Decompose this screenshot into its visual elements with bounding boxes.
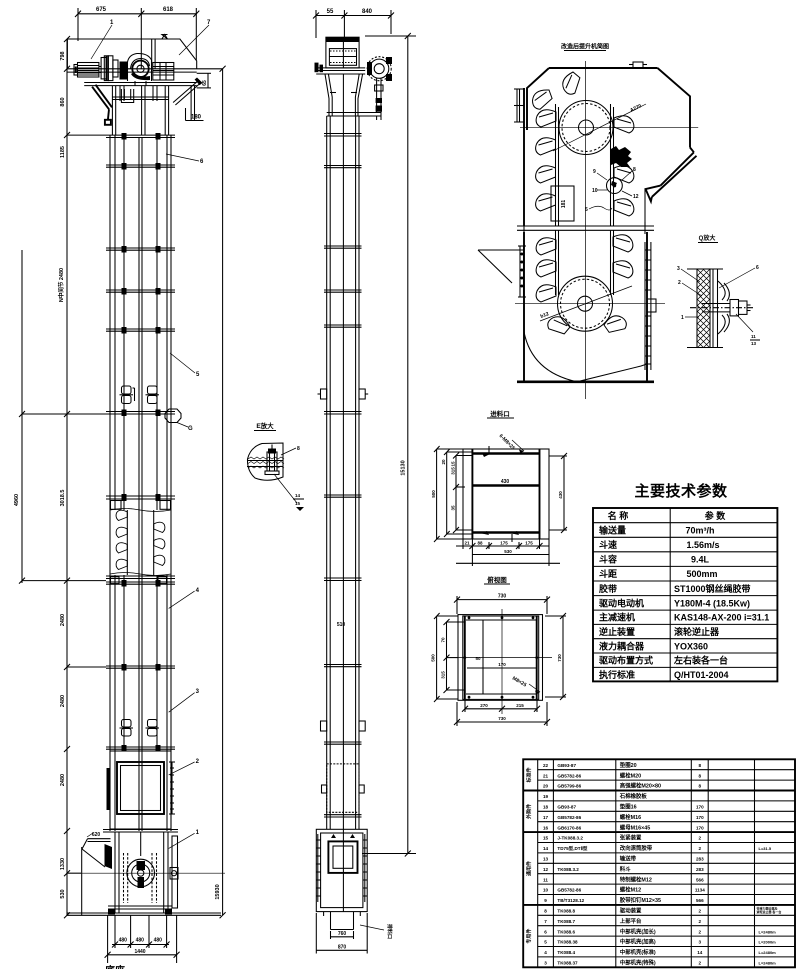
svg-text:430: 430 (501, 479, 510, 485)
svg-text:俯视图: 俯视图 (487, 575, 507, 584)
svg-text:专用件: 专用件 (526, 929, 533, 944)
svg-text:6: 6 (756, 265, 759, 271)
svg-text:1: 1 (681, 315, 684, 321)
svg-text:3018.5: 3018.5 (60, 490, 66, 507)
svg-text:4: 4 (544, 950, 547, 955)
svg-text:500: 500 (431, 490, 436, 498)
svg-text:50: 50 (475, 656, 481, 661)
svg-text:GB5782-86: GB5782-86 (557, 888, 581, 893)
svg-text:标准件: 标准件 (526, 767, 533, 783)
svg-text:2480: 2480 (60, 695, 66, 707)
svg-text:TK088.6: TK088.6 (557, 929, 575, 934)
svg-text:3: 3 (544, 961, 547, 966)
svg-text:2: 2 (699, 919, 702, 924)
svg-text:3: 3 (677, 266, 680, 272)
svg-text:9.4L: 9.4L (691, 555, 710, 565)
svg-text:GB5799-86: GB5799-86 (557, 784, 581, 789)
svg-text:5: 5 (544, 940, 547, 945)
svg-text:840: 840 (362, 9, 373, 15)
svg-text:中部机壳(加长): 中部机壳(加长) (620, 927, 656, 935)
svg-text:9: 9 (544, 898, 547, 903)
svg-text:张紧装置: 张紧装置 (620, 834, 642, 842)
svg-text:10: 10 (592, 188, 598, 194)
svg-text:19: 19 (543, 794, 549, 799)
svg-text:3: 3 (699, 940, 702, 945)
svg-text:181: 181 (561, 200, 567, 209)
svg-text:13: 13 (751, 341, 757, 346)
svg-text:170: 170 (696, 825, 704, 830)
svg-text:14: 14 (543, 846, 549, 851)
svg-text:175: 175 (525, 541, 533, 546)
svg-text:TK088.37: TK088.37 (557, 961, 578, 966)
svg-text:4960: 4960 (14, 494, 20, 506)
svg-text:2: 2 (678, 280, 681, 286)
svg-text:左右装各一台: 左右装各一台 (673, 655, 728, 666)
svg-text:1134: 1134 (695, 888, 705, 893)
svg-text:通用件: 通用件 (526, 861, 533, 876)
svg-text:排料口: 排料口 (386, 924, 393, 939)
svg-text:螺栓M12: 螺栓M12 (620, 886, 641, 894)
svg-text:TK088.8: TK088.8 (557, 909, 575, 914)
svg-text:35: 35 (451, 505, 456, 511)
svg-text:螺母M16×45: 螺母M16×45 (620, 823, 650, 831)
svg-text:798: 798 (60, 51, 66, 60)
svg-text:Y180M-4 (18.5Kw): Y180M-4 (18.5Kw) (674, 598, 750, 608)
svg-text:88: 88 (477, 541, 483, 546)
svg-text:675: 675 (96, 7, 107, 13)
svg-text:TB/T3128.12: TB/T3128.12 (557, 898, 584, 903)
svg-text:480: 480 (136, 938, 145, 944)
svg-text:566: 566 (696, 877, 704, 882)
svg-text:L=2480m: L=2480m (759, 950, 777, 955)
svg-text:驱动装置: 驱动装置 (620, 907, 642, 915)
svg-text:21: 21 (543, 773, 549, 778)
svg-text:1185: 1185 (60, 146, 66, 158)
svg-text:中部机壳(加高): 中部机壳(加高) (620, 938, 656, 946)
svg-text:8: 8 (297, 446, 300, 452)
svg-text:TD75型,DTⅡ型: TD75型,DTⅡ型 (557, 845, 587, 852)
svg-text:特制螺栓M12: 特制螺栓M12 (620, 875, 652, 883)
svg-text:760: 760 (338, 931, 347, 937)
svg-text:65: 65 (202, 80, 208, 86)
svg-text:2: 2 (699, 846, 702, 851)
svg-text:2480: 2480 (60, 614, 66, 626)
svg-text:滚轮逆止器: 滚轮逆止器 (674, 626, 720, 637)
svg-text:L=2000m: L=2000m (759, 940, 777, 945)
svg-text:8: 8 (699, 763, 702, 768)
svg-text:TK088.3.2: TK088.3.2 (557, 867, 579, 872)
svg-text:15930: 15930 (215, 884, 221, 899)
svg-text:510: 510 (337, 622, 346, 628)
svg-text:驱动布置方式: 驱动布置方式 (599, 655, 653, 666)
svg-text:进料口: 进料口 (490, 409, 510, 418)
svg-text:执行标准: 执行标准 (599, 669, 635, 680)
svg-text:170: 170 (696, 815, 704, 820)
svg-text:530: 530 (60, 889, 66, 898)
svg-text:15: 15 (451, 461, 456, 467)
svg-text:480: 480 (154, 938, 163, 944)
svg-text:上部平台: 上部平台 (620, 917, 642, 925)
svg-text:566: 566 (696, 898, 704, 903)
svg-text:驱动电动机: 驱动电动机 (599, 597, 644, 608)
svg-text:外购件: 外购件 (526, 804, 533, 819)
svg-text:20: 20 (543, 784, 549, 789)
svg-text:GB5782-86: GB5782-86 (557, 815, 581, 820)
svg-text:螺栓M20: 螺栓M20 (620, 771, 641, 779)
svg-text:斗容: 斗容 (599, 554, 617, 565)
svg-text:GB93-87: GB93-87 (557, 763, 576, 768)
svg-text:液力耦合器: 液力耦合器 (599, 640, 645, 651)
svg-text:620: 620 (92, 832, 101, 838)
svg-text:55: 55 (327, 9, 334, 15)
svg-text:GB6170-86: GB6170-86 (557, 825, 581, 830)
svg-text:14: 14 (697, 950, 703, 955)
svg-text:22: 22 (543, 763, 549, 768)
svg-text:TK088.7: TK088.7 (557, 919, 575, 924)
svg-text:8: 8 (633, 167, 636, 173)
svg-text:中部机壳(标准): 中部机壳(标准) (620, 948, 656, 956)
svg-text:垫圈16: 垫圈16 (620, 803, 637, 811)
svg-text:500: 500 (431, 654, 436, 662)
svg-text:中部机壳(特殊): 中部机壳(特殊) (620, 959, 656, 967)
svg-text:7: 7 (544, 919, 547, 924)
svg-text:2: 2 (699, 836, 702, 841)
svg-text:5: 5 (585, 207, 588, 213)
svg-text:10: 10 (543, 888, 549, 893)
svg-text:8: 8 (699, 784, 702, 789)
svg-text:1.56m/s: 1.56m/s (686, 540, 719, 550)
svg-text:8: 8 (699, 773, 702, 778)
svg-text:12: 12 (633, 194, 639, 200)
svg-text:1330: 1330 (60, 858, 66, 870)
svg-text:283: 283 (696, 857, 704, 862)
svg-text:名 称: 名 称 (608, 510, 629, 521)
svg-text:螺栓M16: 螺栓M16 (620, 813, 641, 821)
svg-text:11: 11 (543, 877, 548, 882)
svg-text:改造后提升机简图: 改造后提升机简图 (561, 43, 609, 51)
svg-text:参 数: 参 数 (705, 510, 727, 521)
svg-text:18: 18 (543, 805, 549, 810)
svg-text:730: 730 (498, 594, 507, 600)
svg-text:胶带扣钉M12×35: 胶带扣钉M12×35 (620, 896, 661, 904)
svg-text:15: 15 (295, 501, 301, 506)
svg-text:2: 2 (699, 929, 702, 934)
svg-text:N中间节 2480: N中间节 2480 (57, 268, 65, 302)
svg-text:11: 11 (751, 334, 756, 339)
svg-text:618: 618 (163, 7, 174, 13)
svg-text:15: 15 (543, 836, 549, 841)
svg-text:730: 730 (498, 716, 506, 721)
svg-text:输送量: 输送量 (599, 525, 626, 536)
svg-text:480: 480 (119, 938, 128, 944)
svg-text:14: 14 (295, 493, 301, 498)
svg-text:15130: 15130 (401, 460, 407, 475)
svg-text:L=2480m: L=2480m (759, 961, 777, 966)
svg-text:主要技术参数: 主要技术参数 (634, 482, 728, 500)
svg-text:TK088.38: TK088.38 (557, 940, 578, 945)
svg-text:12: 12 (543, 867, 549, 872)
svg-text:料斗: 料斗 (620, 865, 631, 873)
svg-text:8: 8 (544, 909, 547, 914)
svg-text:1440: 1440 (134, 949, 145, 955)
svg-text:530: 530 (504, 549, 512, 554)
svg-text:315: 315 (441, 671, 446, 679)
svg-text:L=2480m: L=2480m (759, 929, 777, 934)
svg-text:730: 730 (557, 654, 562, 662)
svg-text:215: 215 (516, 703, 524, 708)
svg-text:315: 315 (451, 467, 456, 475)
svg-text:860: 860 (60, 97, 66, 106)
svg-text:L=31.5: L=31.5 (759, 846, 772, 851)
svg-text:Q/HT01-2004: Q/HT01-2004 (674, 670, 729, 680)
svg-text:改向滚筒胶带: 改向滚筒胶带 (620, 844, 653, 852)
svg-text:主减速机: 主减速机 (599, 612, 635, 623)
svg-text:ST1000钢丝绳胶带: ST1000钢丝绳胶带 (674, 583, 751, 594)
svg-text:斗速: 斗速 (599, 539, 617, 550)
svg-text:13: 13 (543, 857, 549, 862)
svg-text:283: 283 (696, 867, 704, 872)
svg-text:2: 2 (699, 961, 702, 966)
svg-text:17: 17 (543, 815, 549, 820)
svg-text:16: 16 (543, 825, 549, 830)
svg-text:输送带: 输送带 (620, 855, 637, 863)
svg-text:20: 20 (441, 459, 446, 465)
svg-text:胶带: 胶带 (599, 583, 617, 594)
svg-text:180: 180 (191, 114, 202, 120)
svg-text:GB93-87: GB93-87 (557, 805, 576, 810)
svg-text:500mm: 500mm (686, 569, 717, 579)
svg-text:430: 430 (558, 491, 563, 499)
svg-text:Q放大: Q放大 (699, 234, 716, 242)
svg-text:170: 170 (696, 805, 704, 810)
svg-text:滚轮逆止器 各一台: 滚轮逆止器 各一台 (757, 909, 782, 914)
svg-text:YOX360: YOX360 (674, 641, 708, 651)
svg-text:6: 6 (544, 929, 547, 934)
svg-text:TK088.4: TK088.4 (557, 950, 575, 955)
svg-text:G: G (188, 426, 193, 432)
svg-text:70: 70 (441, 637, 446, 643)
svg-text:270: 270 (480, 703, 488, 708)
svg-text:175: 175 (500, 541, 508, 546)
svg-text:70m³/h: 70m³/h (685, 526, 714, 536)
svg-text:高强螺栓M20×80: 高强螺栓M20×80 (620, 782, 661, 790)
svg-text:石棉橡胶板: 石棉橡胶板 (619, 792, 648, 800)
svg-text:GB5782-86: GB5782-86 (557, 773, 581, 778)
svg-text:E放大: E放大 (256, 421, 274, 430)
svg-text:斗距: 斗距 (599, 569, 617, 579)
svg-text:垫圈20: 垫圈20 (620, 761, 637, 769)
svg-text:2: 2 (699, 909, 702, 914)
svg-text:9: 9 (593, 169, 596, 175)
svg-text:870: 870 (338, 945, 347, 951)
svg-text:KAS148-AX-200 i=31.1: KAS148-AX-200 i=31.1 (674, 613, 769, 623)
svg-text:21: 21 (464, 541, 470, 546)
svg-text:J-TK088.3.2: J-TK088.3.2 (557, 836, 583, 841)
svg-text:170: 170 (498, 662, 506, 667)
svg-text:2480: 2480 (60, 774, 66, 786)
svg-text:逆止装置: 逆止装置 (599, 626, 635, 637)
